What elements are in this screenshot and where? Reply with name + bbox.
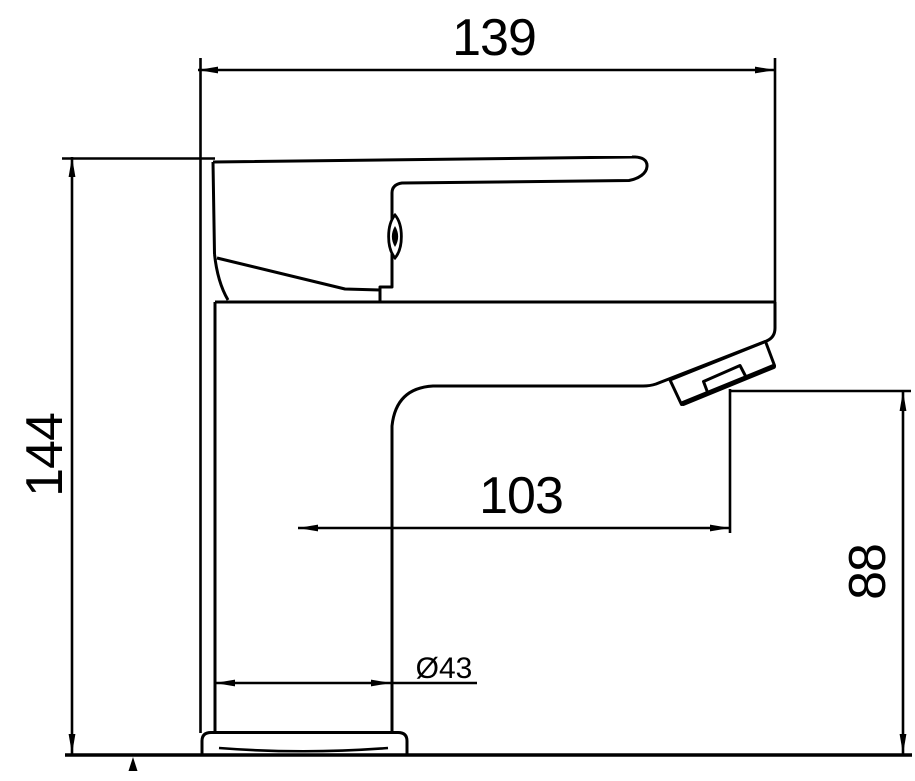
arrowhead-bottom (69, 734, 76, 754)
drawing-canvas: 139 144 103 88 Ø43 (0, 0, 915, 781)
arrowhead-top (900, 391, 907, 411)
arrowhead-right (371, 680, 391, 687)
dim-label-overall-height: 144 (19, 413, 71, 497)
dim-label-base-diameter: Ø43 (416, 654, 473, 684)
arrowhead-top (69, 157, 76, 177)
dim-label-spout-height: 88 (842, 544, 894, 600)
arrowhead-left (298, 525, 318, 532)
aerator-inner-insert (704, 366, 747, 394)
arrowhead-bottom (900, 734, 907, 754)
arrowhead-left (215, 680, 235, 687)
arrowhead-right (710, 525, 730, 532)
faucet-outline-group (202, 157, 775, 755)
faucet-handle-outline (213, 157, 647, 301)
base-bottom-curve (219, 748, 388, 751)
dimension-overall-height (62, 157, 215, 754)
dim-label-spout-reach: 103 (479, 470, 563, 522)
dim-label-overall-length: 139 (452, 12, 536, 64)
arrowhead-right (755, 67, 775, 74)
mounting-surface (65, 755, 912, 771)
surface-indicator-arrow (129, 757, 138, 771)
